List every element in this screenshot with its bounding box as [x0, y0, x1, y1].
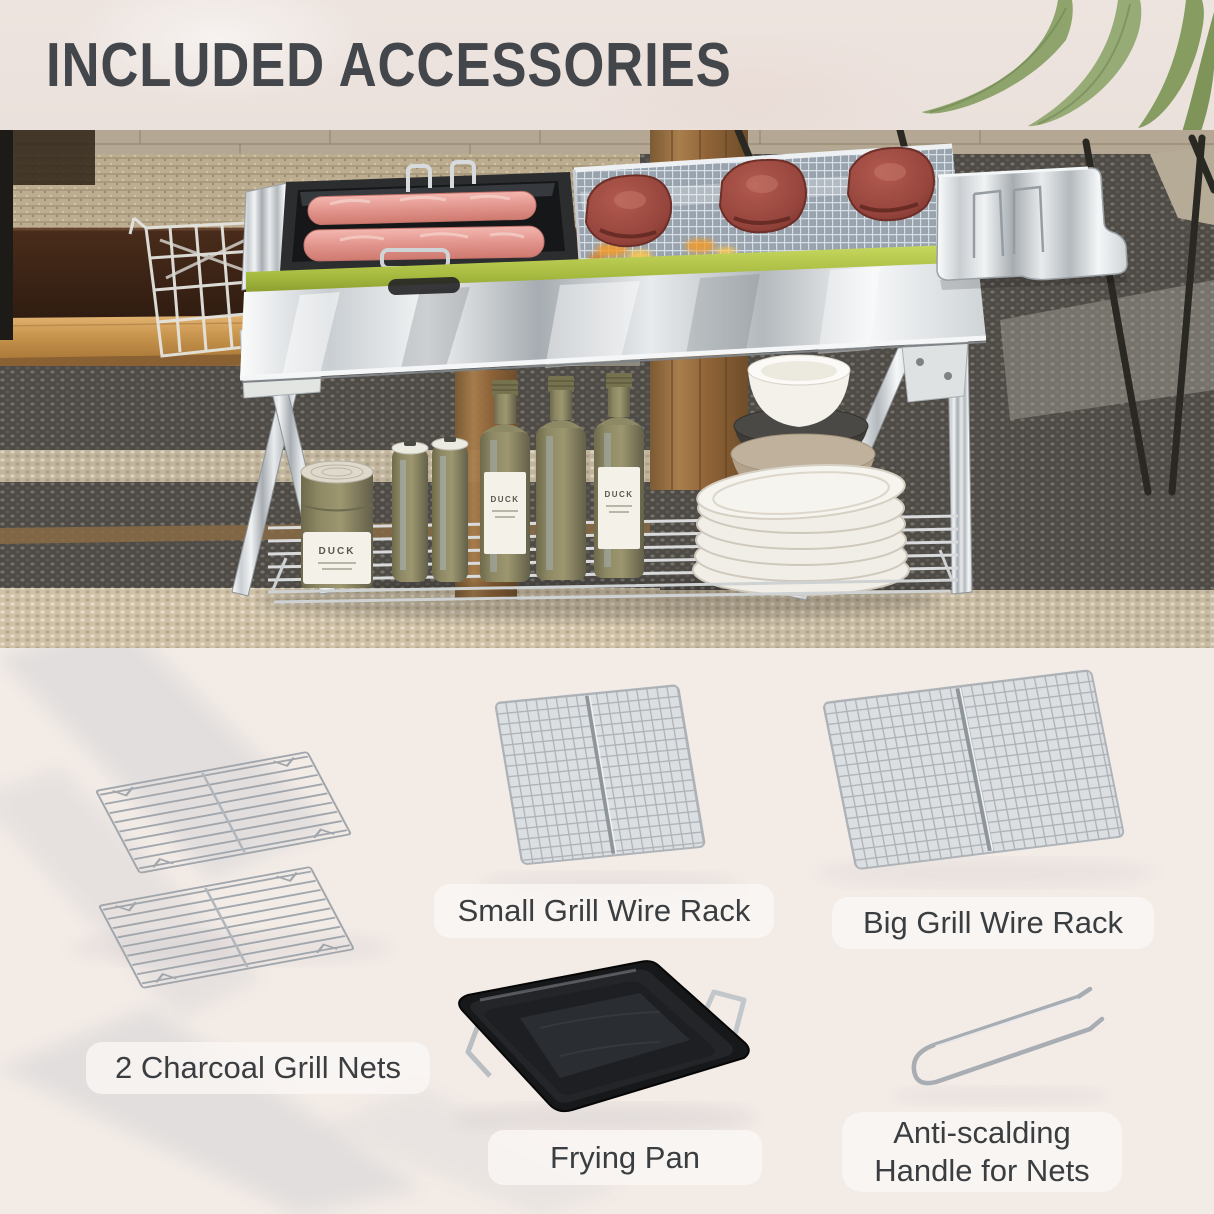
header-banner: INCLUDED ACCESSORIES [0, 0, 1214, 130]
svg-text:DUCK: DUCK [604, 490, 633, 499]
small-grill-wire-rack-image [480, 685, 740, 899]
palm-leaves-decoration [880, 0, 1214, 134]
label-small-grill-wire-rack: Small Grill Wire Rack [434, 884, 774, 938]
product-infographic: INCLUDED ACCESSORIES [0, 0, 1214, 1214]
side-table-tray [937, 168, 1128, 290]
anti-scalding-handle-image [890, 989, 1110, 1105]
label-anti-scalding-handle: Anti-scalding Handle for Nets [842, 1112, 1122, 1192]
oil-bottles: DUCK [480, 373, 644, 582]
label-charcoal-grill-nets: 2 Charcoal Grill Nets [86, 1042, 430, 1094]
label-big-grill-wire-rack: Big Grill Wire Rack [832, 897, 1154, 949]
big-grill-wire-rack-image [815, 670, 1155, 887]
page-title: INCLUDED ACCESSORIES [46, 30, 732, 101]
svg-text:DUCK: DUCK [490, 495, 519, 504]
duck-can-stack: DUCK [301, 461, 373, 588]
lifestyle-photo: DUCK [0, 130, 1214, 648]
svg-text:DUCK: DUCK [319, 546, 356, 557]
frying-pan-image [455, 961, 755, 1132]
label-frying-pan: Frying Pan [488, 1130, 762, 1185]
